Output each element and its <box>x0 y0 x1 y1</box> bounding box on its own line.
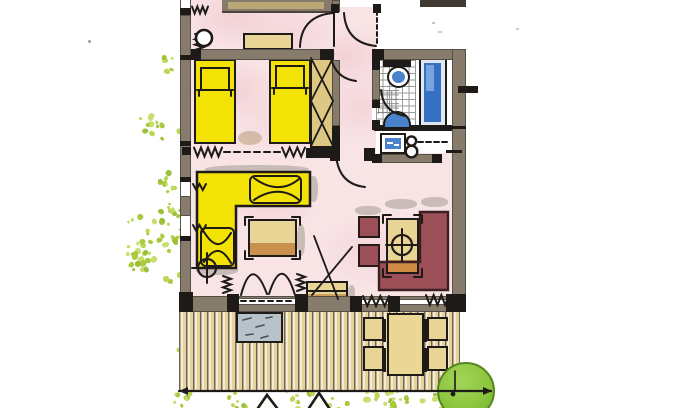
bed-pillow <box>272 66 308 94</box>
french-door-arc <box>241 274 267 295</box>
dimension-arrow <box>483 387 492 395</box>
hob-burner <box>407 136 416 145</box>
door-arc-bedroom <box>330 52 356 81</box>
bed-pillow <box>197 68 233 96</box>
sofa-cushion-curves <box>254 178 299 200</box>
stool <box>196 30 212 46</box>
cut-arrow-tip <box>258 395 277 408</box>
wardrobe-x-brace <box>311 58 333 146</box>
ceiling-lamp-symbol <box>386 229 418 261</box>
radiator-zigzag <box>192 7 208 14</box>
sofa-outline <box>197 172 310 268</box>
radiator-zigzag <box>193 184 206 190</box>
radiator-zigzag <box>223 276 231 293</box>
hob-burner <box>406 146 418 158</box>
ink-overlay <box>0 0 680 408</box>
door-arc-top-room <box>300 13 333 47</box>
radiator-zigzag <box>363 296 389 306</box>
tree-center-dot <box>451 392 456 397</box>
radiator-zigzag <box>297 274 305 291</box>
door-arc-hall-entry <box>344 13 376 46</box>
radiator-zigzag <box>194 148 222 157</box>
french-door-arc <box>269 274 295 295</box>
table-corner-ticks <box>245 217 300 259</box>
bench-outline <box>379 212 448 290</box>
radiator-zigzag <box>426 295 449 305</box>
dimension-arrow <box>179 387 188 395</box>
door-arc-living <box>336 154 365 187</box>
floor-plan-scan <box>0 0 680 408</box>
tv-antenna <box>312 236 352 299</box>
cut-arrow-tip <box>309 393 329 408</box>
doormat-dashes <box>243 317 272 338</box>
radiator-zigzag <box>282 148 305 157</box>
door-arc-bathroom <box>381 90 406 116</box>
